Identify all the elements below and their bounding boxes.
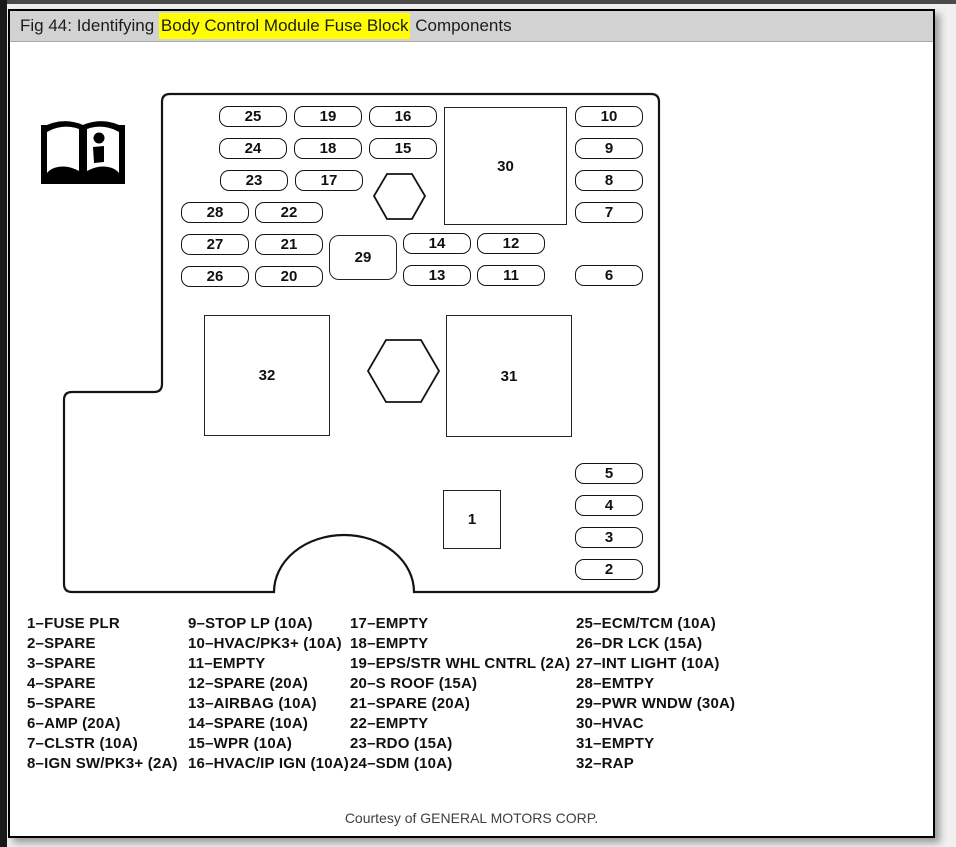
legend-column-1: 1–FUSE PLR2–SPARE3–SPARE4–SPARE5–SPARE6–… bbox=[27, 614, 178, 774]
fuse-6: 6 bbox=[575, 265, 643, 286]
fuse-15: 15 bbox=[369, 138, 437, 159]
legend-item: 6–AMP (20A) bbox=[27, 714, 178, 734]
component-box-30: 30 bbox=[444, 107, 567, 225]
fuse-22: 22 bbox=[255, 202, 323, 223]
legend-item: 32–RAP bbox=[576, 754, 735, 774]
fuse-27: 27 bbox=[181, 234, 249, 255]
fuse-9: 9 bbox=[575, 138, 643, 159]
fuse-17: 17 bbox=[295, 170, 363, 191]
legend-item: 2–SPARE bbox=[27, 634, 178, 654]
legend-item: 19–EPS/STR WHL CNTRL (2A) bbox=[350, 654, 570, 674]
fuse-19: 19 bbox=[294, 106, 362, 127]
legend-item: 11–EMPTY bbox=[188, 654, 349, 674]
legend-column-4: 25–ECM/TCM (10A)26–DR LCK (15A)27–INT LI… bbox=[576, 614, 735, 774]
legend-item: 24–SDM (10A) bbox=[350, 754, 570, 774]
fuse-24: 24 bbox=[219, 138, 287, 159]
fuse-block-diagram: Courtesy of GENERAL MOTORS CORP. 2519161… bbox=[10, 42, 933, 836]
fuse-16: 16 bbox=[369, 106, 437, 127]
legend-item: 13–AIRBAG (10A) bbox=[188, 694, 349, 714]
legend-item: 23–RDO (15A) bbox=[350, 734, 570, 754]
fuse-5: 5 bbox=[575, 463, 643, 484]
legend-item: 22–EMPTY bbox=[350, 714, 570, 734]
fuse-4: 4 bbox=[575, 495, 643, 516]
hex-bolt-middle-icon bbox=[368, 340, 439, 402]
legend-item: 1–FUSE PLR bbox=[27, 614, 178, 634]
figure-viewer-window: Fig 44: Identifying Body Control Module … bbox=[8, 9, 935, 838]
component-box-31: 31 bbox=[446, 315, 572, 437]
fuse-13: 13 bbox=[403, 265, 471, 286]
fuse-10: 10 bbox=[575, 106, 643, 127]
legend-item: 27–INT LIGHT (10A) bbox=[576, 654, 735, 674]
legend-item: 29–PWR WNDW (30A) bbox=[576, 694, 735, 714]
legend-item: 15–WPR (10A) bbox=[188, 734, 349, 754]
fuse-7: 7 bbox=[575, 202, 643, 223]
legend-item: 5–SPARE bbox=[27, 694, 178, 714]
legend-item: 12–SPARE (20A) bbox=[188, 674, 349, 694]
legend-item: 4–SPARE bbox=[27, 674, 178, 694]
legend-column-3: 17–EMPTY18–EMPTY19–EPS/STR WHL CNTRL (2A… bbox=[350, 614, 570, 774]
hex-bolt-top-icon bbox=[374, 174, 425, 219]
legend-item: 17–EMPTY bbox=[350, 614, 570, 634]
legend-item: 20–S ROOF (15A) bbox=[350, 674, 570, 694]
component-box-32: 32 bbox=[204, 315, 330, 436]
screen-left-edge bbox=[0, 0, 7, 847]
legend-item: 26–DR LCK (15A) bbox=[576, 634, 735, 654]
fuse-14: 14 bbox=[403, 233, 471, 254]
fuse-23: 23 bbox=[220, 170, 288, 191]
fuse-8: 8 bbox=[575, 170, 643, 191]
legend-item: 9–STOP LP (10A) bbox=[188, 614, 349, 634]
component-box-1: 1 bbox=[443, 490, 501, 549]
open-book-info-icon bbox=[40, 115, 126, 193]
fuse-18: 18 bbox=[294, 138, 362, 159]
legend-item: 28–EMTPY bbox=[576, 674, 735, 694]
screen-top-edge bbox=[0, 0, 956, 4]
legend-column-2: 9–STOP LP (10A)10–HVAC/PK3+ (10A)11–EMPT… bbox=[188, 614, 349, 774]
fuse-2: 2 bbox=[575, 559, 643, 580]
legend-item: 30–HVAC bbox=[576, 714, 735, 734]
fuse-26: 26 bbox=[181, 266, 249, 287]
courtesy-line: Courtesy of GENERAL MOTORS CORP. bbox=[10, 810, 933, 826]
fuse-12: 12 bbox=[477, 233, 545, 254]
fuse-11: 11 bbox=[477, 265, 545, 286]
legend-item: 18–EMPTY bbox=[350, 634, 570, 654]
fuse-21: 21 bbox=[255, 234, 323, 255]
fuse-20: 20 bbox=[255, 266, 323, 287]
legend-item: 3–SPARE bbox=[27, 654, 178, 674]
legend-item: 25–ECM/TCM (10A) bbox=[576, 614, 735, 634]
legend-item: 16–HVAC/IP IGN (10A) bbox=[188, 754, 349, 774]
legend-item: 10–HVAC/PK3+ (10A) bbox=[188, 634, 349, 654]
legend-item: 8–IGN SW/PK3+ (2A) bbox=[27, 754, 178, 774]
component-box-29: 29 bbox=[329, 235, 397, 280]
legend-item: 21–SPARE (20A) bbox=[350, 694, 570, 714]
fuse-25: 25 bbox=[219, 106, 287, 127]
fuse-3: 3 bbox=[575, 527, 643, 548]
legend-item: 7–CLSTR (10A) bbox=[27, 734, 178, 754]
legend-item: 14–SPARE (10A) bbox=[188, 714, 349, 734]
legend-item: 31–EMPTY bbox=[576, 734, 735, 754]
fuse-28: 28 bbox=[181, 202, 249, 223]
